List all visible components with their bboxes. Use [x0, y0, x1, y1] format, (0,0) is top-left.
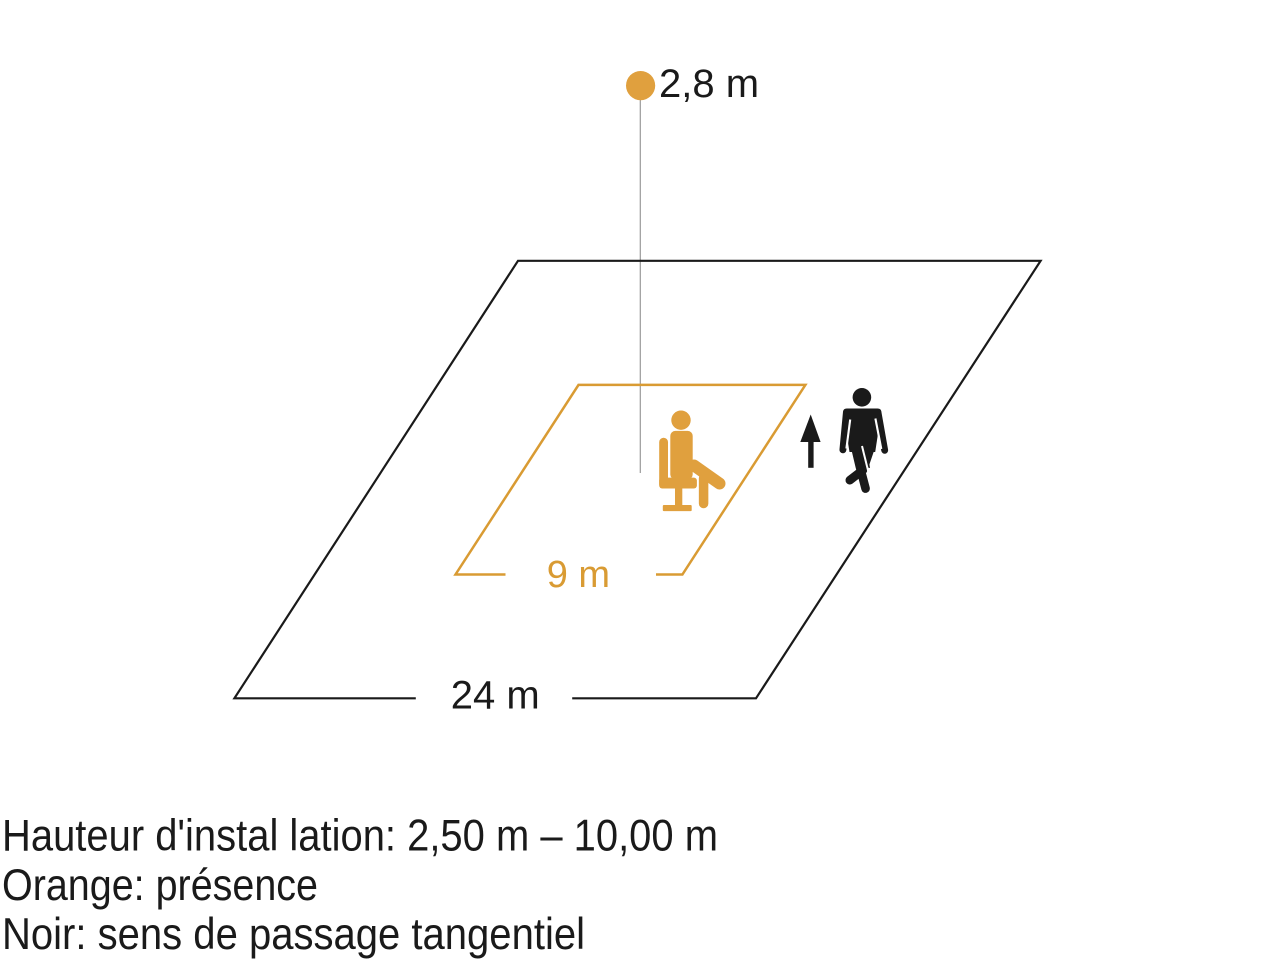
svg-text:Hauteur d'instal lation: 2,50: Hauteur d'instal lation: 2,50 m – 10,00 …	[2, 812, 718, 861]
svg-text:Orange: présence: Orange: présence	[2, 861, 318, 910]
svg-text:Noir: sens de passage tangenti: Noir: sens de passage tangentiel	[2, 910, 585, 959]
svg-text:24 m: 24 m	[451, 674, 540, 718]
svg-text:9 m: 9 m	[547, 554, 610, 596]
svg-text:2,8 m: 2,8 m	[659, 62, 759, 106]
